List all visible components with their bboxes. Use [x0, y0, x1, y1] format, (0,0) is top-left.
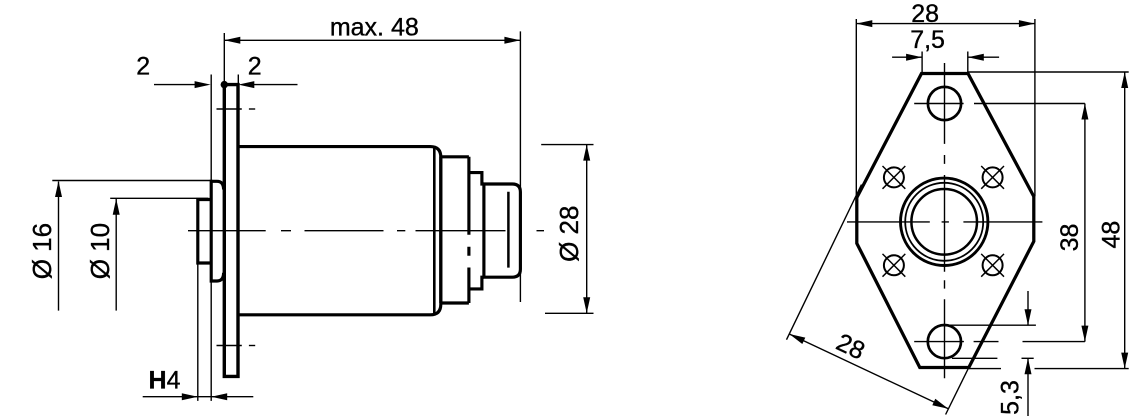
svg-text:5,3: 5,3: [997, 380, 1025, 415]
svg-text:H4: H4: [149, 367, 181, 395]
svg-text:38: 38: [1056, 224, 1084, 252]
svg-text:max. 48: max. 48: [330, 14, 419, 42]
svg-text:2: 2: [248, 53, 262, 81]
svg-text:28: 28: [911, 0, 939, 28]
svg-text:Ø 28: Ø 28: [554, 206, 584, 262]
svg-text:48: 48: [1097, 221, 1125, 249]
svg-text:2: 2: [136, 53, 150, 81]
svg-text:7,5: 7,5: [910, 26, 945, 54]
svg-text:Ø 10: Ø 10: [85, 223, 115, 279]
svg-text:Ø 16: Ø 16: [27, 223, 57, 279]
